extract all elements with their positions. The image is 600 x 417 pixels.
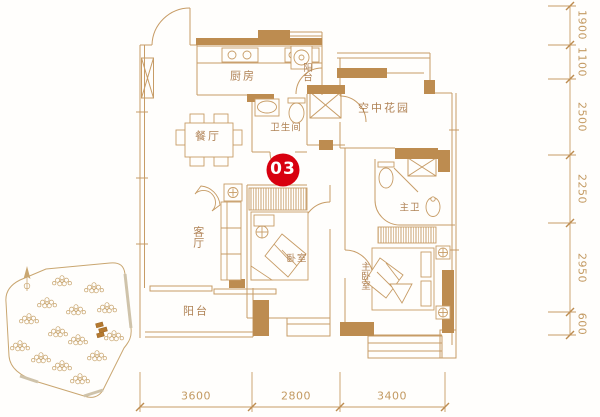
dimension-chain-right [548,2,576,339]
site-plan-inset [6,263,131,398]
site-highlighted-building [96,322,108,338]
room-label-laundry-balcony: 阳台 [301,63,311,82]
master-toilet [378,162,394,188]
master-bath-door-arc [375,200,400,225]
room-label-kitchen: 厨房 [230,71,256,82]
dim-right-2500: 2500 [576,102,589,132]
unit-badge-label: 03 [270,159,296,179]
room-label-bedroom: 卧室 [286,254,307,264]
room-label-balcony: 阳台 [183,306,209,317]
master-bay-window [368,336,442,358]
room-label-sky-garden: 空中花园 [358,103,410,114]
sliding-door-panel [214,289,276,294]
room-label-bathroom: 卫生间 [270,123,302,133]
entry-door-arc [152,8,190,45]
room-label-dining: 餐厅 [195,131,221,142]
dim-bottom-3600: 3600 [181,390,211,403]
master-bed [365,246,450,319]
room-label-master-bathroom: 主卫 [399,203,420,213]
bedroom-wardrobe [249,188,307,210]
master-wardrobe [378,227,436,243]
dim-right-1900: 1900 [576,10,589,40]
dim-bottom-2800: 2800 [281,390,311,403]
floor-plan-page: 厨房 餐厅 卫生间 空中花园 客厅 卧室 主卫 主卧室 阳台 阳台 03 190… [0,0,600,417]
floor-plan-drawing [0,0,600,417]
sofa [221,202,241,280]
dim-right-1100: 1100 [576,47,589,77]
master-sink [426,197,440,217]
toilet [288,98,305,123]
bedroom-bed [251,212,308,280]
dim-right-600: 600 [576,313,589,336]
dim-bottom-3400: 3400 [377,390,407,403]
dim-right-2250: 2250 [576,174,589,204]
dim-right-2950: 2950 [576,253,589,283]
room-label-master-bedroom: 主卧室 [359,262,369,291]
bedroom-bay-window [287,318,330,336]
sliding-door-panel [150,286,212,291]
bathroom-sink [255,99,279,116]
kitchen-stove [222,48,258,62]
room-label-living: 客厅 [192,226,204,248]
